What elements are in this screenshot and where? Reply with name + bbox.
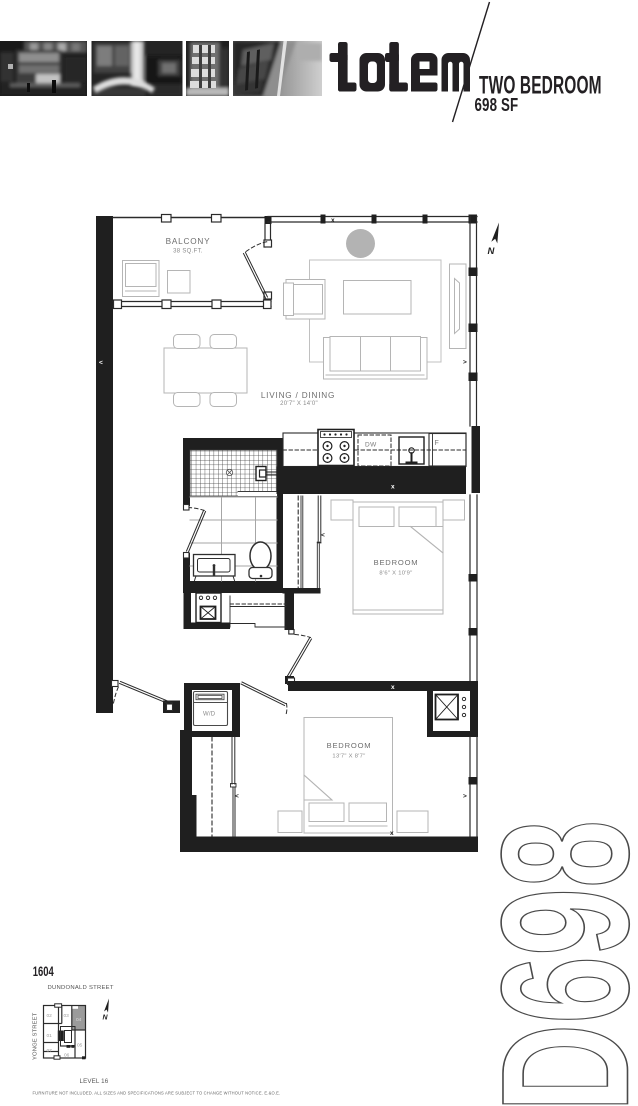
svg-text:LIVING / DINING: LIVING / DINING [261,391,335,400]
svg-text:>: > [463,793,467,800]
svg-text:02: 02 [47,1013,53,1019]
svg-text:13'7" X 8'7": 13'7" X 8'7" [332,754,365,760]
svg-text:N: N [103,1015,109,1022]
svg-text:F: F [435,440,439,447]
svg-text:x: x [331,217,335,224]
svg-text:LEVEL 16: LEVEL 16 [80,1078,109,1085]
svg-text:x: x [390,830,394,837]
svg-text:04: 04 [76,1017,82,1023]
svg-text:07: 07 [47,1048,53,1054]
svg-text:DUNDONALD STREET: DUNDONALD STREET [48,985,114,991]
svg-text:D698: D698 [465,820,638,1106]
svg-text:05: 05 [77,1043,83,1049]
svg-text:<: < [99,360,103,367]
svg-text:BALCONY: BALCONY [166,237,211,246]
svg-text:DW: DW [365,442,377,449]
svg-text:38 SQ.FT.: 38 SQ.FT. [173,249,203,255]
svg-text:20'7" X 14'0": 20'7" X 14'0" [280,401,318,407]
svg-text:FURNITURE NOT INCLUDED. ALL SI: FURNITURE NOT INCLUDED. ALL SIZES AND SP… [33,1091,281,1096]
svg-text:YONGE STREET: YONGE STREET [33,1012,39,1060]
svg-text:1604: 1604 [33,964,54,979]
svg-text:>: > [463,359,467,366]
svg-text:<: < [235,793,239,800]
svg-text:01: 01 [47,1033,53,1039]
svg-text:<: < [321,532,325,539]
svg-text:x: x [391,684,395,691]
svg-text:8'6" X 10'9": 8'6" X 10'9" [379,571,412,577]
svg-text:W/D: W/D [203,712,216,718]
svg-text:03: 03 [64,1013,70,1019]
svg-text:N: N [488,246,496,257]
svg-text:BEDROOM: BEDROOM [374,558,419,567]
svg-text:698 SF: 698 SF [475,95,519,116]
svg-text:06: 06 [64,1053,70,1059]
svg-text:BEDROOM: BEDROOM [327,741,372,750]
svg-text:x: x [391,484,395,491]
